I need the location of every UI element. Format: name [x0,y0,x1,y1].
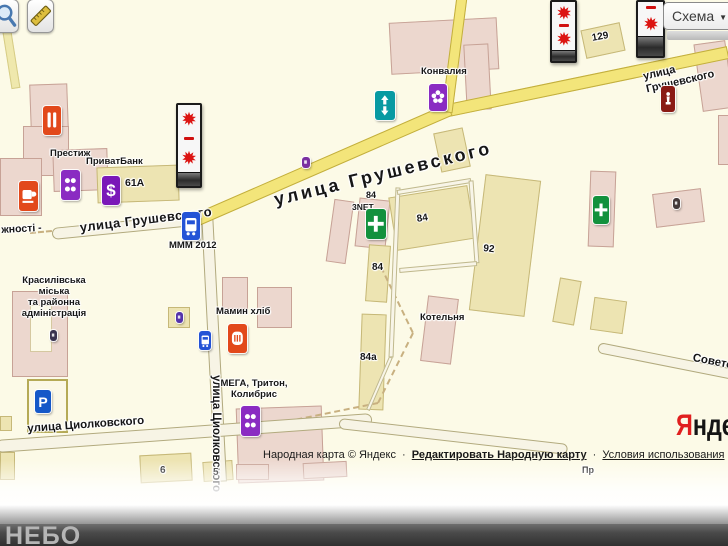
watermark-text: НЕБО [5,524,728,546]
poi-label: Конвалия [421,67,467,78]
magnifier-icon [0,20,18,35]
billboard-base [638,36,663,56]
building [139,453,192,484]
billboard-screen [178,105,200,172]
attribution-separator: · [593,449,597,461]
building [420,295,459,364]
small-marker-icon[interactable] [673,198,680,209]
chevron-down-icon: ▼ [719,13,727,22]
map-app-window: улица Грушевскогоулица Грушевскогоулица … [0,0,728,546]
poi-label: Пр [582,465,594,475]
lane-block-bottom [399,261,477,273]
building-number: 6 [160,465,166,477]
zoom-tool-button[interactable] [0,0,19,33]
cafe-icon[interactable] [19,181,38,211]
poi-label: Котельня [420,313,464,324]
building [388,185,475,251]
building [718,115,728,165]
map-bottom-fade [0,460,728,510]
billboard-base [552,50,575,61]
street-label: жності - [1,222,42,236]
privatbank-icon-glyph: $ [106,182,115,199]
building [552,277,581,325]
pharmacy-3net-icon[interactable] [366,209,386,239]
building-number: 84 [366,190,376,200]
building-number: 61А [125,177,144,189]
billboard-screen [552,2,575,50]
attribution-separator: · [402,449,406,461]
billboard-text [559,24,569,27]
building-number: 5 [213,467,219,479]
building-number: 92 [483,243,495,256]
ruler-icon [28,20,53,35]
billboard-text [184,137,194,140]
purple-dot-marker[interactable] [302,157,310,168]
yandex-logo[interactable]: Яндекс [676,409,728,443]
poi-label: Красилівська міська та районна адміністр… [14,276,94,320]
crossing-icon[interactable] [375,91,395,120]
attribution-text: Народная карта © Яндекс [263,449,396,461]
restaurant-icon[interactable] [43,106,61,135]
billboard-2[interactable] [550,0,577,63]
footer-bar: НЕБО [0,524,728,546]
parking-icon-glyph: P [38,395,47,409]
bus-stop-icon[interactable] [199,331,211,350]
billboard-1[interactable] [176,103,202,188]
billboard-base [178,172,200,186]
panel-edge [667,31,728,40]
privatbank-icon[interactable]: $ [102,176,120,205]
building-number: 84 [372,262,383,274]
billboard-screen [638,2,663,36]
page-gradient [0,505,728,524]
building [0,452,15,480]
map-canvas[interactable]: улица Грушевскогоулица Грушевскогоулица … [0,0,728,510]
parking-icon[interactable]: P [35,390,51,413]
mega-shop-icon[interactable] [241,406,260,436]
edit-map-link[interactable]: Редактировать Народную карту [412,449,587,461]
monument-icon[interactable] [661,86,675,112]
yandex-logo-first-letter: Я [676,409,693,442]
billboard-3[interactable] [636,0,665,58]
poi-label: ПриватБанк [86,157,143,168]
ruler-tool-button[interactable] [27,0,54,33]
building [590,297,627,334]
poi-label: Престиж [50,149,90,160]
map-type-label: Схема [672,8,714,24]
pharmacy-icon[interactable] [593,196,609,224]
terms-link[interactable]: Условия использования [602,449,724,461]
building [365,244,391,302]
building [469,174,541,317]
poi-label: МММ 2012 [169,241,217,252]
map-type-button[interactable]: Схема▼ [663,2,728,30]
building [236,464,269,480]
prestige-shop-icon[interactable] [61,170,80,200]
building [326,199,355,264]
building [0,416,12,431]
building-number: 84а [360,352,377,364]
building [222,277,248,309]
flower-shop-icon[interactable] [429,84,447,111]
bus-stop-mmm-icon[interactable] [182,212,200,240]
map-attribution: Народная карта © Яндекс · Редактировать … [263,449,725,461]
small-marker-2-icon[interactable] [176,312,183,323]
bakery-icon[interactable] [228,324,247,353]
building [303,461,348,479]
billboard-text [646,6,656,9]
admin-marker-icon[interactable] [50,330,57,341]
poi-label: Мамин хліб [216,307,270,318]
building-number: 84 [416,212,429,225]
yandex-logo-rest: ндекс [693,409,728,442]
poi-label: МЕГА, Тритон, Колибрис [217,379,291,401]
